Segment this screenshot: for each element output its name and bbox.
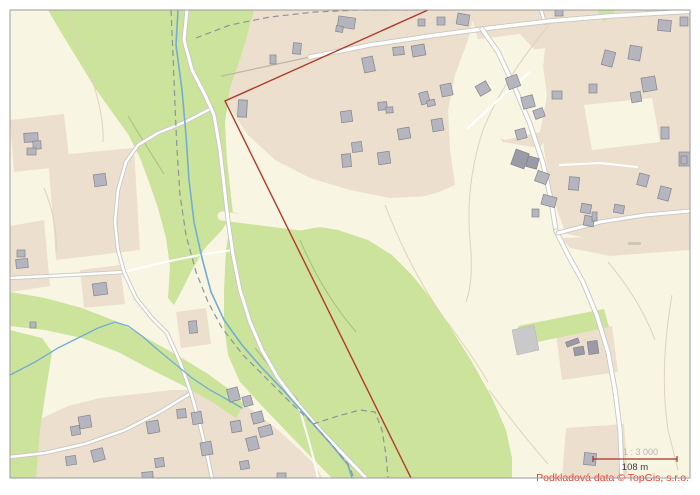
building	[340, 110, 352, 122]
building	[142, 472, 153, 479]
building	[200, 441, 213, 456]
building	[92, 282, 108, 296]
field-label-illegible	[628, 242, 641, 245]
building	[293, 43, 302, 55]
building	[613, 204, 624, 214]
building	[437, 17, 445, 25]
building	[411, 44, 426, 57]
building	[431, 118, 444, 132]
building	[30, 322, 36, 328]
building	[386, 107, 393, 114]
building	[78, 415, 92, 429]
building	[277, 473, 286, 478]
building	[456, 13, 470, 26]
map-canvas[interactable]: 1 : 3 000 108 m Podkladová data © TopGis…	[0, 0, 700, 495]
building	[70, 425, 80, 435]
building	[251, 411, 264, 424]
building	[589, 84, 597, 93]
building	[270, 55, 276, 64]
building	[238, 100, 248, 117]
building	[191, 411, 203, 425]
building	[573, 346, 584, 356]
building	[91, 448, 106, 463]
building	[641, 76, 657, 92]
building	[336, 26, 344, 33]
building	[555, 10, 563, 16]
building	[146, 420, 160, 434]
building	[16, 258, 29, 268]
building	[630, 91, 642, 103]
building	[526, 156, 539, 169]
building	[377, 151, 391, 165]
building	[27, 148, 36, 155]
building	[230, 420, 242, 433]
building	[552, 91, 562, 99]
building	[681, 156, 687, 164]
building	[188, 321, 197, 334]
building	[397, 127, 411, 140]
built-up-area	[10, 220, 50, 292]
building	[532, 209, 539, 217]
building	[587, 340, 599, 354]
building	[658, 19, 672, 31]
field-pocket	[584, 98, 660, 150]
building	[239, 460, 249, 469]
building	[351, 141, 362, 152]
building	[65, 455, 76, 465]
building	[154, 457, 164, 467]
building	[592, 212, 597, 221]
building	[93, 173, 107, 187]
field-labels	[628, 242, 641, 245]
building	[418, 19, 425, 26]
building	[568, 177, 579, 191]
building	[680, 17, 688, 26]
building	[515, 128, 527, 140]
building	[661, 127, 669, 139]
gray-patch	[512, 325, 539, 355]
building	[628, 45, 642, 61]
building	[580, 203, 591, 214]
building	[440, 83, 453, 97]
building	[177, 409, 187, 419]
building	[393, 47, 405, 56]
building	[521, 95, 536, 110]
gray-patches	[512, 325, 539, 355]
building	[17, 250, 25, 257]
scale-ratio-label: 1 : 3 000	[623, 447, 658, 457]
map-window: 1 : 3 000 108 m Podkladová data © TopGis…	[0, 0, 700, 495]
building	[341, 154, 351, 168]
